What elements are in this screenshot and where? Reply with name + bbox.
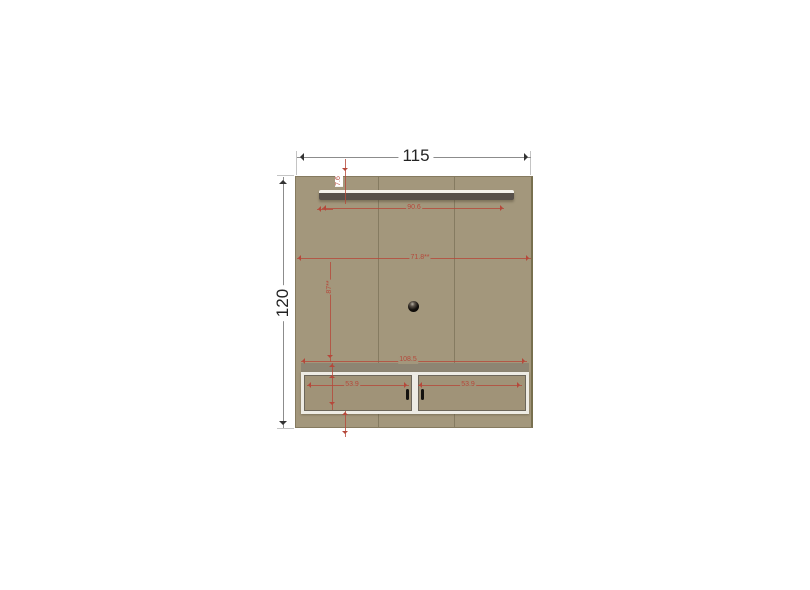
cabinet-width-label: 108.5 (398, 356, 418, 364)
arrow-width-right (524, 153, 532, 161)
arrow-height-bottom (279, 421, 287, 429)
left-compartment-label: 53.9 (344, 381, 360, 389)
left-door-handle (406, 389, 409, 400)
red-arrow-left-comp-right (404, 382, 410, 388)
top-shelf (319, 190, 514, 200)
cabinet-divider (411, 375, 419, 411)
right-compartment-label: 53.9 (460, 381, 476, 389)
shelf-length-label: 90.6 (406, 204, 422, 212)
red-arrow-shelf-drop (342, 168, 348, 174)
red-arrow-shelf-length-left (320, 205, 326, 211)
red-arrow-right-comp-left (416, 382, 422, 388)
shelf-body (319, 193, 514, 200)
dimension-drawing-canvas: 115 120 7.6 90.6 71.8** 87** 108.5 53.9 … (0, 0, 810, 590)
overall-width-label: 115 (398, 146, 433, 166)
lower-cabinet (301, 372, 529, 414)
shelf-drop-label: 7.6 (335, 175, 343, 187)
red-arrow-left-comp-left (305, 382, 311, 388)
red-arrow-right-comp-right (517, 382, 523, 388)
red-arrow-shelf-length-right (500, 205, 506, 211)
red-line-shelf-drop (345, 159, 346, 204)
arrow-width-left (296, 153, 304, 161)
mid-width-label: 71.8** (409, 254, 430, 262)
red-line-upper-height (330, 262, 331, 362)
arrow-height-top (279, 176, 287, 184)
red-arrow-cabinet-left (299, 358, 305, 364)
red-arrow-comp-top (329, 372, 335, 378)
right-door-handle (421, 389, 424, 400)
red-arrow-mid-right (526, 255, 532, 261)
red-arrow-recess-top (329, 361, 335, 367)
red-arrow-mid-left (295, 255, 301, 261)
red-arrow-bottom-strip-top (342, 409, 348, 415)
overall-height-label: 120 (273, 285, 293, 321)
red-arrow-bottom-strip-bottom (342, 431, 348, 437)
red-arrow-cabinet-right (522, 358, 528, 364)
cabinet-recess-shadow (301, 363, 529, 372)
cable-hole (408, 301, 419, 312)
red-arrow-comp-bottom (329, 402, 335, 408)
upper-section-height-label: 87** (326, 279, 334, 294)
